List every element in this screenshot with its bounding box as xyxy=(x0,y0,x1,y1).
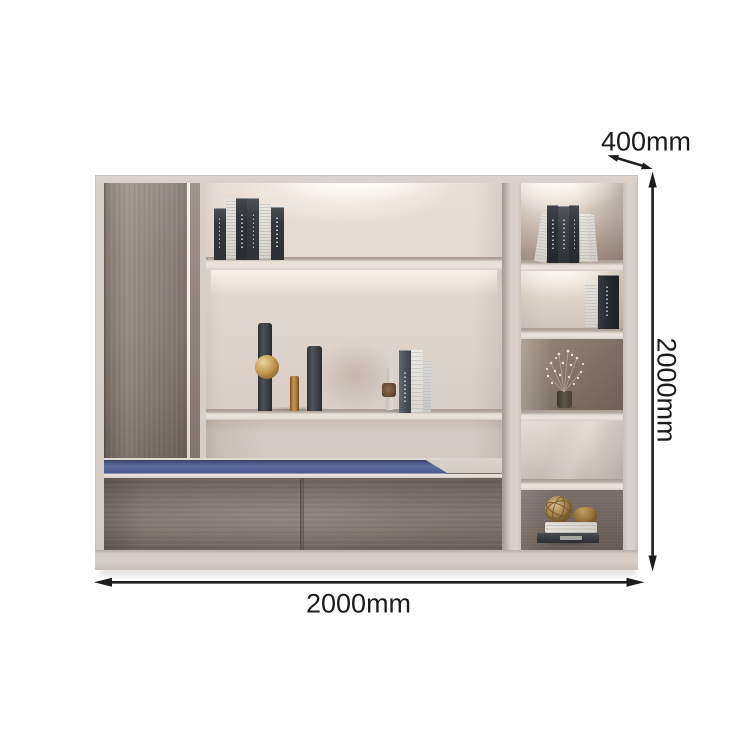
svg-text:2000mm: 2000mm xyxy=(652,337,682,442)
svg-text:400mm: 400mm xyxy=(601,127,691,157)
svg-text:2000mm: 2000mm xyxy=(306,589,411,619)
